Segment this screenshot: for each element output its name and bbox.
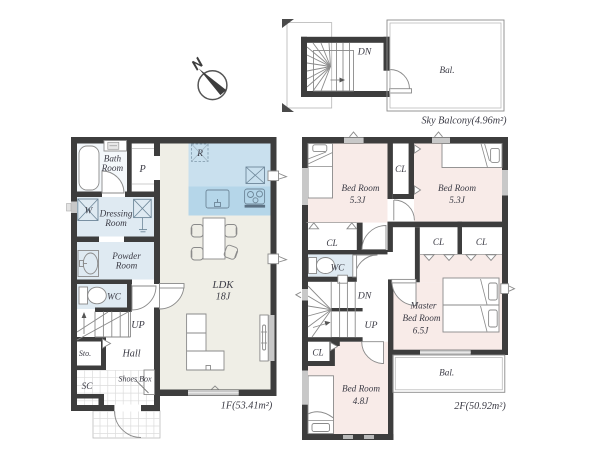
svg-text:CL: CL [312, 348, 323, 358]
svg-text:2F(50.92m²): 2F(50.92m²) [454, 401, 506, 412]
svg-text:5.3J: 5.3J [350, 195, 366, 205]
svg-text:1F(53.41m²): 1F(53.41m²) [221, 401, 273, 412]
svg-text:UP: UP [364, 320, 377, 331]
svg-text:UP: UP [131, 320, 145, 331]
svg-text:Master: Master [409, 301, 436, 311]
svg-text:CL: CL [476, 237, 487, 247]
svg-text:CL: CL [395, 164, 406, 174]
svg-text:Powder: Powder [111, 251, 141, 261]
svg-text:LDK: LDK [211, 279, 234, 291]
svg-text:P: P [138, 164, 145, 175]
svg-text:Bed Room: Bed Room [438, 183, 476, 193]
svg-text:4.8J: 4.8J [353, 396, 369, 406]
svg-text:DN: DN [357, 47, 372, 58]
svg-text:WC: WC [107, 292, 122, 302]
svg-text:WC: WC [331, 263, 346, 273]
svg-text:Room: Room [104, 218, 127, 228]
svg-text:6.5J: 6.5J [413, 326, 429, 336]
svg-text:R: R [196, 148, 203, 158]
svg-text:Bed Room: Bed Room [341, 183, 379, 193]
svg-text:Shoes Box: Shoes Box [118, 375, 152, 384]
svg-text:Bed Room: Bed Room [402, 313, 440, 323]
svg-text:DN: DN [357, 291, 372, 302]
svg-text:W: W [85, 206, 94, 216]
svg-text:Room: Room [101, 163, 124, 173]
svg-text:SC: SC [82, 381, 94, 391]
svg-text:Bal.: Bal. [439, 65, 454, 75]
svg-text:Sto.: Sto. [79, 349, 91, 358]
svg-text:Hall: Hall [121, 349, 140, 360]
svg-text:Dressing: Dressing [99, 209, 133, 219]
svg-text:CL: CL [433, 237, 444, 247]
svg-text:Bed Room: Bed Room [342, 384, 380, 394]
svg-text:Room: Room [115, 261, 138, 271]
svg-text:Sky Balcony(4.96m²): Sky Balcony(4.96m²) [421, 116, 507, 127]
svg-text:Bath: Bath [104, 153, 122, 163]
svg-text:5.3J: 5.3J [449, 195, 465, 205]
svg-text:CL: CL [326, 238, 337, 248]
svg-text:18J: 18J [216, 292, 231, 303]
svg-text:Bal.: Bal. [439, 368, 454, 378]
